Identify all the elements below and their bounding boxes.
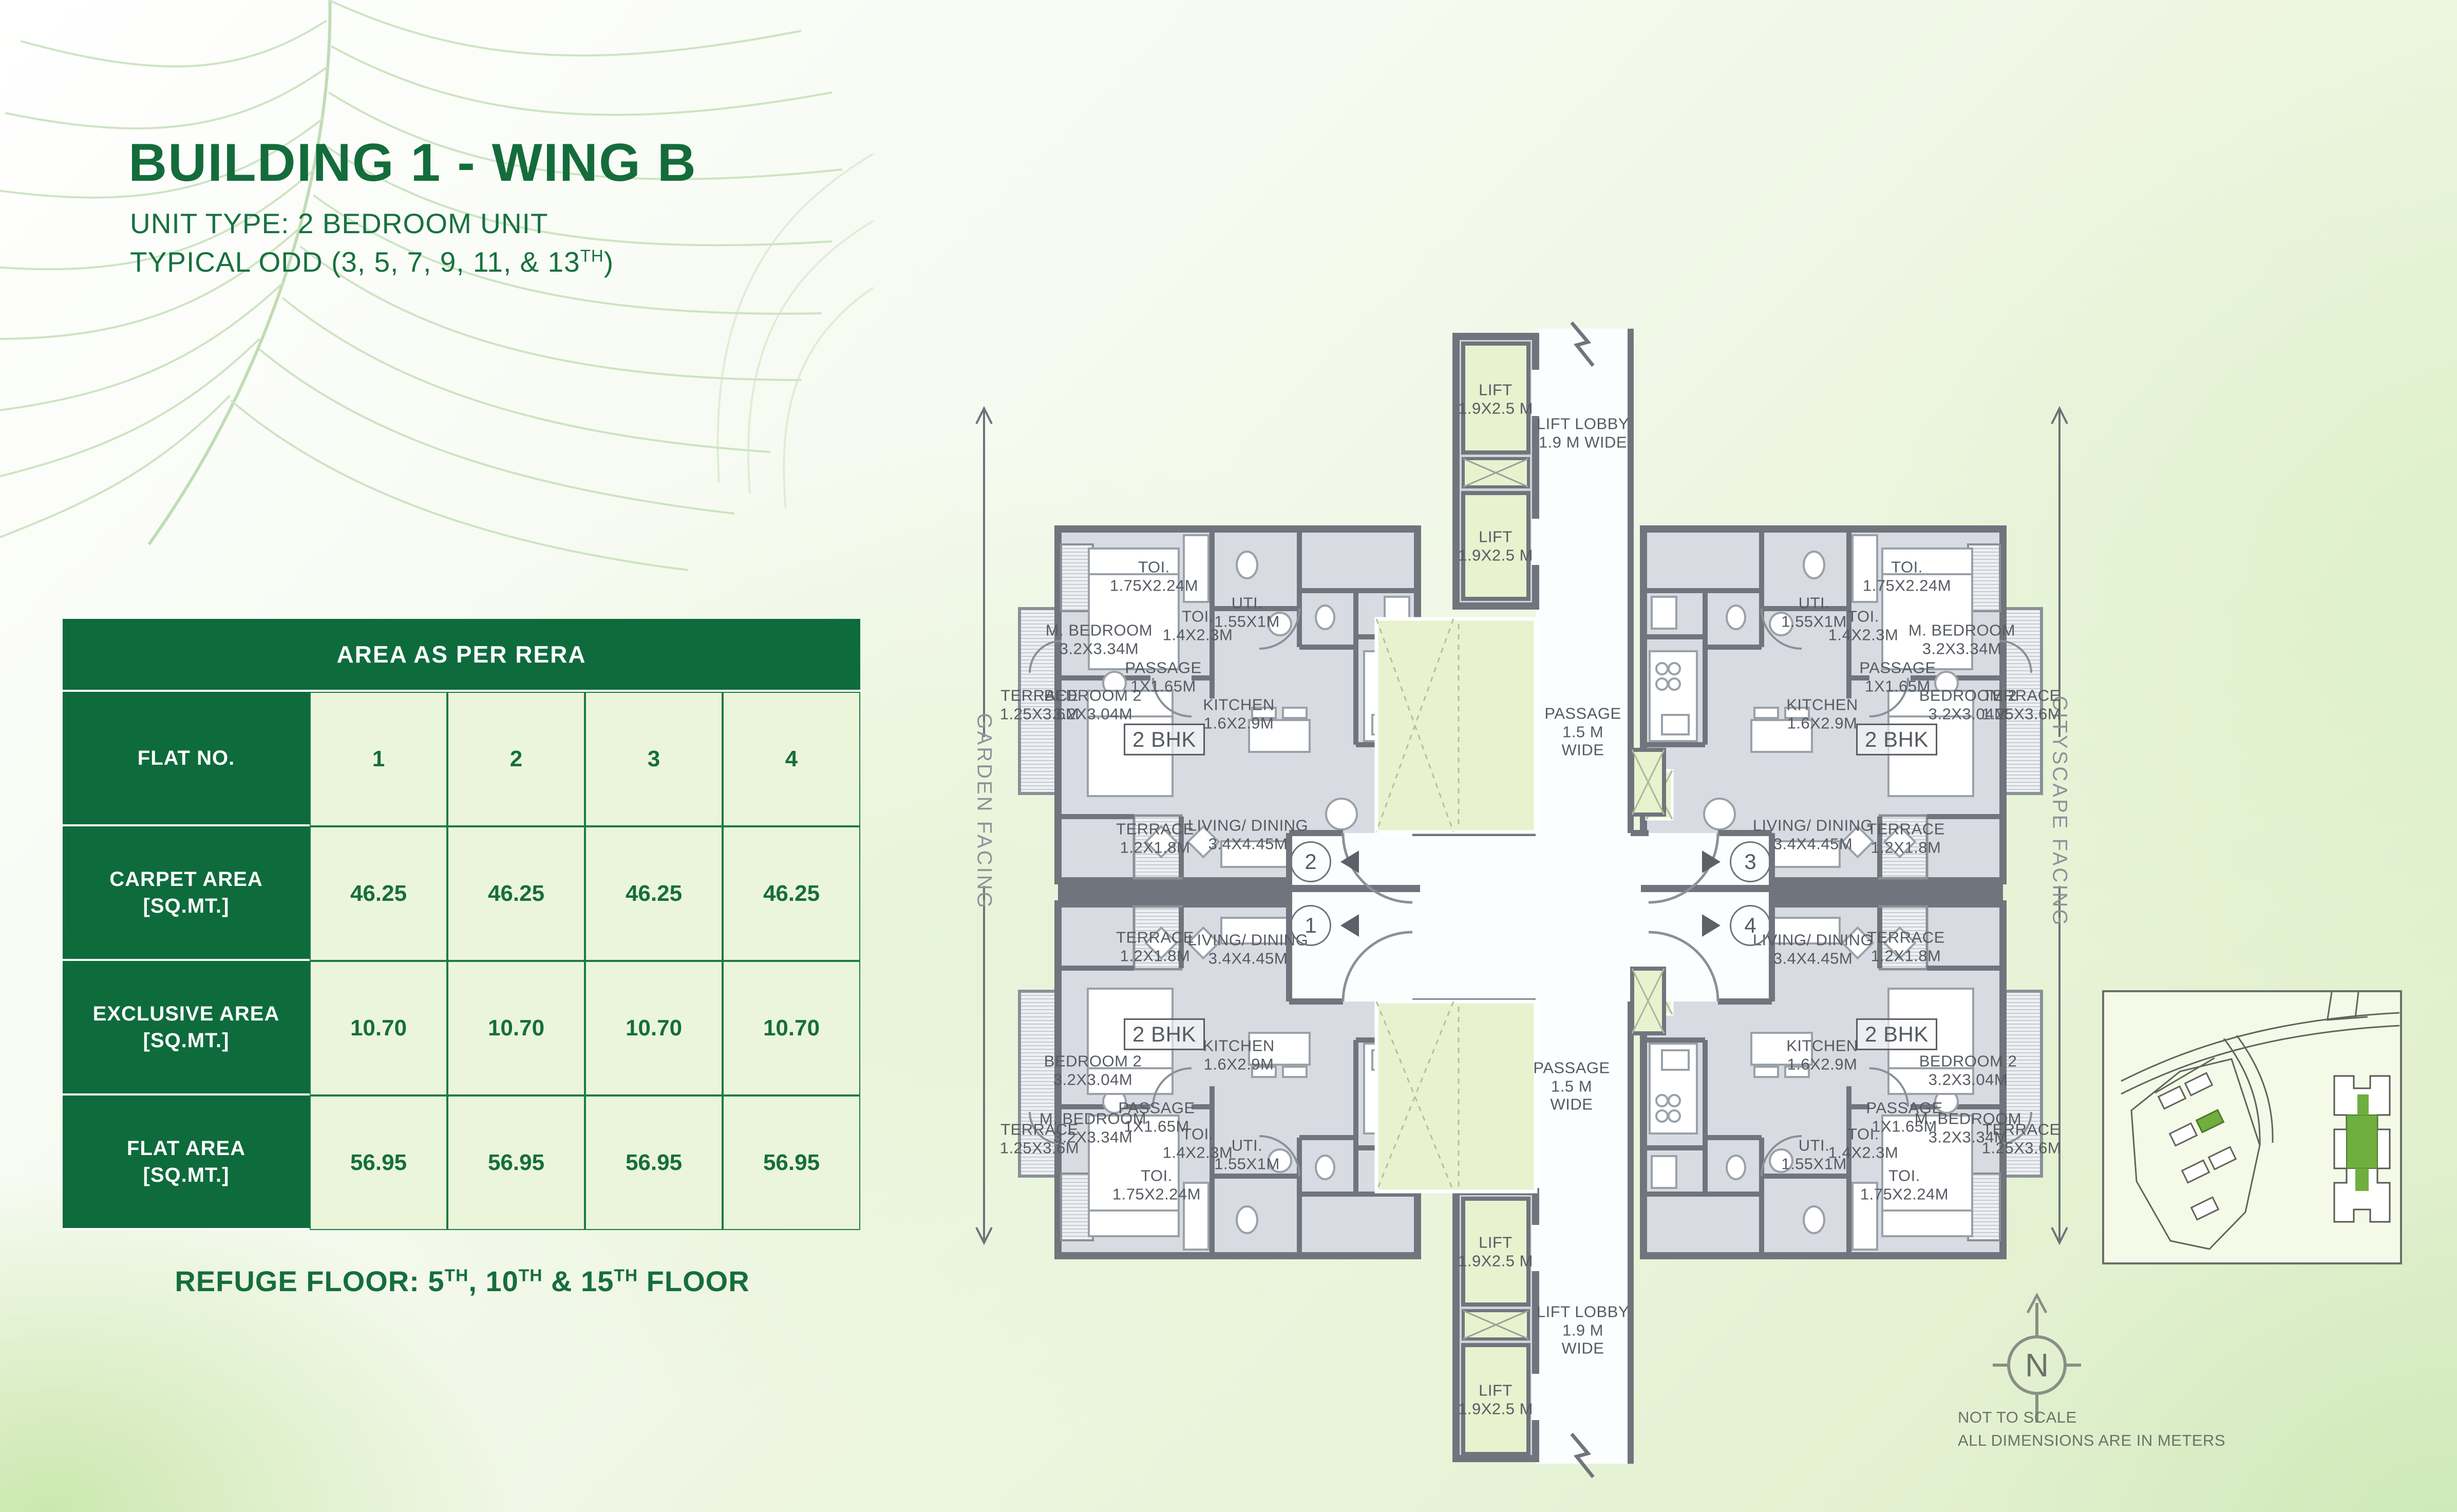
room-label: TOI.1.75X2.24M bbox=[1860, 1166, 1949, 1203]
room-label: UTI.1.55X1M bbox=[1214, 594, 1280, 630]
room-label: TERRACE1.2X1.8M bbox=[1116, 820, 1194, 856]
plan-notes: NOT TO SCALE ALL DIMENSIONS ARE IN METER… bbox=[1958, 1406, 2225, 1452]
room-label: TERRACE1.2X1.8M bbox=[1116, 928, 1194, 965]
room-label: TERRACE1.2X1.8M bbox=[1867, 928, 1945, 965]
room-label: TOI.1.75X2.24M bbox=[1110, 558, 1198, 594]
room-label: LIVING/ DINING3.4X4.45M bbox=[1753, 931, 1873, 967]
room-label: TERRACE1.2X1.8M bbox=[1867, 820, 1945, 856]
entry-direction-icon bbox=[1340, 850, 1359, 873]
room-label: TOI.1.75X2.24M bbox=[1863, 558, 1951, 594]
room-label: TERRACE1.25X3.6M bbox=[1982, 686, 2061, 723]
room-label: BEDROOM 23.2X3.04M bbox=[1919, 1052, 2017, 1088]
room-label: LIFT1.9X2.5 M bbox=[1458, 1233, 1533, 1270]
room-label: LIVING/ DINING3.4X4.45M bbox=[1188, 931, 1308, 967]
room-label: TERRACE1.25X3.6M bbox=[1000, 1120, 1079, 1157]
room-label: KITCHEN1.6X2.9M bbox=[1786, 1036, 1858, 1073]
bhk-tag: 2 BHK bbox=[1856, 724, 1937, 755]
room-label: TERRACE1.25X3.6M bbox=[1000, 686, 1079, 723]
room-label: KITCHEN1.6X2.9M bbox=[1203, 695, 1275, 732]
cityscape-facing-label: CITYSCAPE FACING bbox=[2048, 696, 2071, 928]
wing-outline bbox=[2334, 1076, 2390, 1222]
flat-number-circle: 2 bbox=[1290, 841, 1331, 882]
bhk-tag: 2 BHK bbox=[1856, 1018, 1937, 1050]
bhk-tag: 2 BHK bbox=[1124, 1018, 1205, 1050]
room-label: LIVING/ DINING3.4X4.45M bbox=[1188, 816, 1308, 853]
room-label: TOI.1.75X2.24M bbox=[1112, 1166, 1201, 1203]
room-label: UTI.1.55X1M bbox=[1781, 1136, 1847, 1173]
room-label: KITCHEN1.6X2.9M bbox=[1203, 1036, 1275, 1073]
entry-direction-icon bbox=[1340, 914, 1359, 937]
north-letter: N bbox=[2025, 1347, 2049, 1384]
room-label: LIFT1.9X2.5 M bbox=[1458, 527, 1533, 564]
flat-number-circle: 3 bbox=[1730, 841, 1771, 882]
floor-plan-svg: N bbox=[0, 0, 2457, 1512]
room-label: M. BEDROOM3.2X3.34M bbox=[1046, 621, 1152, 657]
room-label: BEDROOM 23.2X3.04M bbox=[1044, 1052, 1142, 1088]
room-label: M. BEDROOM3.2X3.34M bbox=[1908, 621, 2015, 657]
flat-number-circle: 1 bbox=[1290, 905, 1331, 946]
room-label: UTI.1.55X1M bbox=[1781, 594, 1847, 630]
room-label: LIFT LOBBY1.9 MWIDE bbox=[1537, 1303, 1629, 1358]
entry-direction-icon bbox=[1702, 850, 1721, 873]
garden-facing-label: GARDEN FACING bbox=[973, 713, 996, 910]
flat-number-circle: 4 bbox=[1730, 905, 1771, 946]
room-label: LIFT1.9X2.5 M bbox=[1458, 381, 1533, 417]
room-label: PASSAGE1.5 MWIDE bbox=[1544, 705, 1621, 760]
entry-direction-icon bbox=[1702, 914, 1721, 937]
room-label: LIVING/ DINING3.4X4.45M bbox=[1753, 816, 1873, 853]
room-label: KITCHEN1.6X2.9M bbox=[1786, 695, 1858, 732]
bhk-tag: 2 BHK bbox=[1124, 724, 1205, 755]
room-label: PASSAGE1.5 MWIDE bbox=[1533, 1059, 1610, 1114]
key-plan-map bbox=[2103, 991, 2401, 1263]
room-label: LIFT1.9X2.5 M bbox=[1458, 1381, 1533, 1417]
room-label: UTI.1.55X1M bbox=[1214, 1136, 1280, 1173]
room-label: LIFT LOBBY1.9 M WIDE bbox=[1537, 414, 1629, 451]
room-label: TERRACE1.25X3.6M bbox=[1982, 1120, 2061, 1157]
